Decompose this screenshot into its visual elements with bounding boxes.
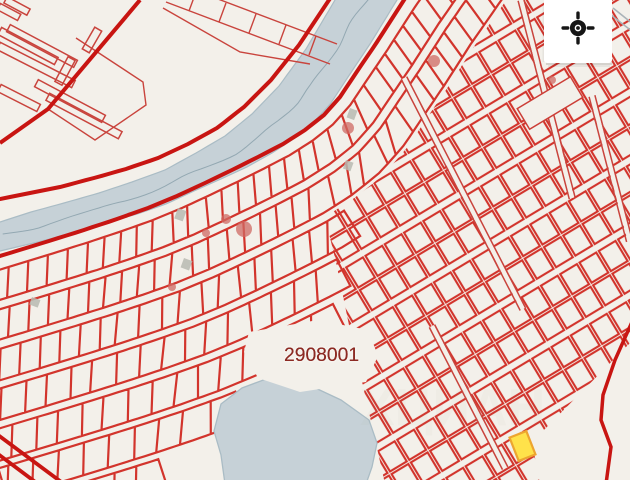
svg-text:XЦИАН: XЦИАН [360, 379, 545, 437]
svg-text:2908001: 2908001 [284, 345, 359, 366]
